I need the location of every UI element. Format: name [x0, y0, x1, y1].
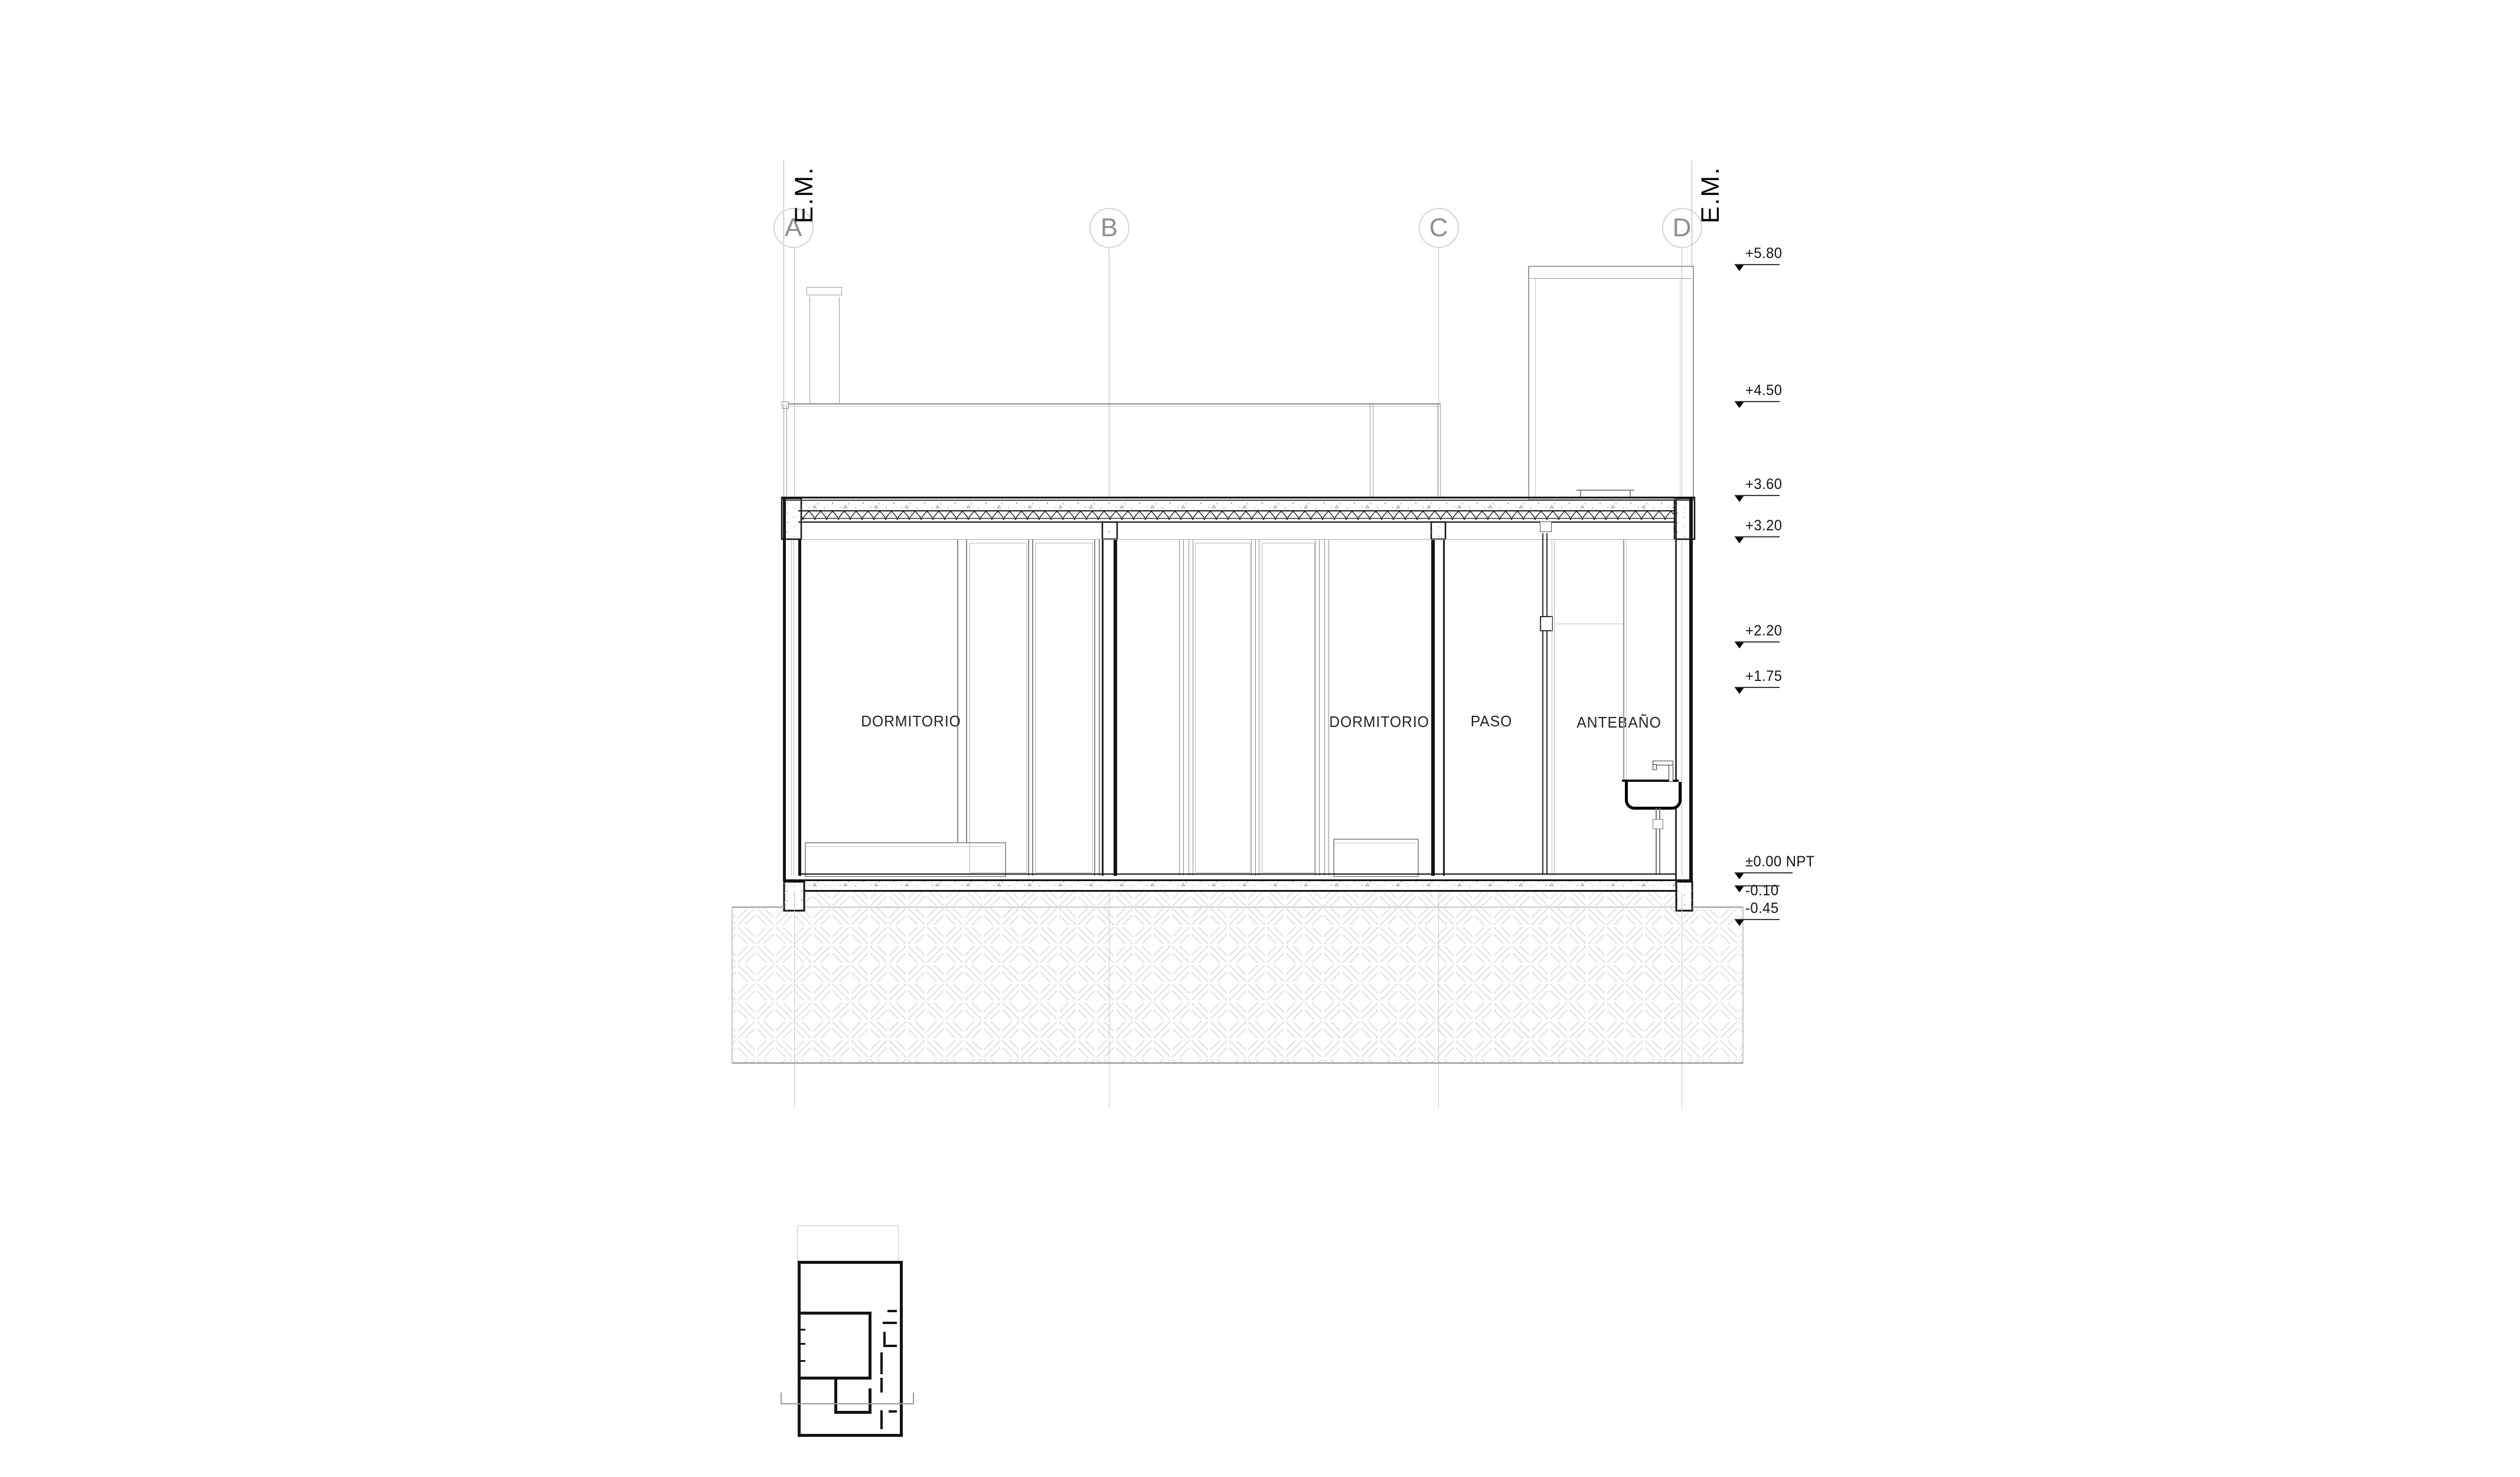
wall-d-outer-leaf	[1689, 498, 1693, 881]
door-leaf-line	[1546, 533, 1548, 875]
parapet-left-cap	[782, 402, 789, 409]
level-triangle-icon	[1735, 687, 1744, 694]
roof-tower-outline	[1528, 266, 1694, 500]
gridline-A-lower	[794, 892, 795, 1108]
roof-bench-top	[1576, 490, 1634, 491]
wall-d-cavity-line	[1682, 540, 1682, 876]
door-panel	[1262, 543, 1315, 873]
level-label: +1.75	[1745, 668, 1782, 685]
keyplan-wall	[883, 1322, 897, 1324]
parapet-mid-post	[1370, 404, 1370, 498]
wall-a-cavity-line	[794, 540, 794, 876]
level-line	[1735, 687, 1780, 688]
foundation-bottom-line	[732, 1062, 1743, 1064]
keyplan-wall	[880, 1410, 883, 1429]
level-line	[1735, 401, 1780, 402]
roof-tower-inner-line-right	[1680, 279, 1680, 498]
keyplan-door-tick	[798, 1343, 805, 1345]
keyplan-wall	[834, 1378, 837, 1413]
window-mullion	[1251, 540, 1252, 876]
level-line	[1735, 919, 1780, 920]
basin-bowl	[1625, 782, 1682, 810]
keyplan-wall	[887, 1310, 897, 1312]
window-mullion	[1179, 540, 1180, 876]
terrain-line-right	[1692, 907, 1743, 908]
level-label: +3.60	[1745, 476, 1782, 493]
grid-axis-label: D	[1673, 213, 1692, 243]
keyplan-wall	[798, 1312, 871, 1315]
window-mullion	[1324, 540, 1325, 876]
door-panel	[1195, 543, 1251, 873]
parapet-top-line	[784, 403, 1441, 405]
window-mullion	[1328, 540, 1329, 876]
parapet-left-post	[786, 404, 787, 498]
terrain-line-left	[732, 907, 784, 908]
room-label-antebano: ANTEBAÑO	[1558, 713, 1681, 732]
keyplan-wall	[834, 1411, 871, 1414]
faucet-tip	[1653, 764, 1657, 770]
wall-c-leaf	[1431, 540, 1435, 876]
wall-a-cavity-line	[791, 540, 792, 876]
room-label-dormitorio-2: DORMITORIO	[1318, 713, 1441, 731]
level-triangle-icon	[1735, 265, 1744, 271]
door-frame-line	[1554, 540, 1555, 876]
drain-pipe-line	[1659, 808, 1660, 874]
window-mullion	[1319, 540, 1320, 876]
room-label-dormitorio-1: DORMITORIO	[850, 712, 973, 731]
level-triangle-icon	[1735, 495, 1744, 502]
keyplan-wall	[880, 1352, 883, 1374]
window-mullion	[1094, 540, 1095, 876]
level-line	[1735, 495, 1780, 496]
bed-outline	[1333, 839, 1419, 877]
level-triangle-icon	[1735, 642, 1744, 648]
window-mullion	[1193, 540, 1193, 876]
wall-c-leaf	[1443, 540, 1445, 876]
party-wall-label-right: E.M.	[1696, 145, 1725, 245]
drain-coupling	[1653, 819, 1663, 829]
window-mullion	[966, 540, 967, 842]
chimney-cap	[807, 287, 842, 295]
window-mullion	[1028, 540, 1029, 876]
wardrobe-panel	[970, 543, 1027, 873]
level-label: ±0.00 NPT	[1745, 853, 1815, 870]
level-label: +3.20	[1745, 517, 1782, 534]
level-label: +2.20	[1745, 622, 1782, 640]
keyplan-section-cut-tick	[913, 1393, 914, 1403]
floor-slab-texture	[785, 881, 1691, 890]
parapet-end-post	[1440, 404, 1441, 498]
window-mullion	[1032, 540, 1033, 876]
shelf-line	[1555, 624, 1623, 624]
level-triangle-icon	[1735, 920, 1744, 926]
wardrobe-panel	[1035, 543, 1093, 873]
drain-pipe-line	[1656, 808, 1657, 874]
level-label: -0.45	[1745, 900, 1779, 917]
bed-top-line	[1334, 843, 1415, 843]
drawing-textures	[0, 0, 2520, 1477]
gridline-B-lower	[1109, 892, 1109, 1108]
keyplan-wall	[883, 1345, 897, 1347]
window-mullion	[1099, 540, 1100, 876]
level-line	[1735, 264, 1780, 265]
keyplan-section-cut-line	[781, 1403, 914, 1404]
keyplan-door-tick	[798, 1360, 805, 1362]
window-mullion	[1259, 540, 1259, 876]
level-triangle-icon	[1735, 402, 1744, 408]
wall-b-leaf	[1114, 540, 1117, 876]
keyplan-wall	[869, 1388, 871, 1414]
roof-joist-deck-band	[798, 511, 1677, 521]
window-mullion	[1255, 540, 1256, 876]
wall-a-inner-leaf	[798, 540, 801, 876]
cabinet-edge-line	[1626, 540, 1627, 781]
grid-bubble-b: B	[1089, 208, 1130, 248]
floor-slab-top-line	[784, 879, 1693, 881]
floor-slab-bottom-line	[805, 890, 1676, 892]
parapet-end-post	[1437, 404, 1438, 498]
roof-top-line-2	[781, 500, 1695, 501]
wall-a-outer-leaf	[783, 498, 786, 881]
window-mullion	[1183, 540, 1184, 876]
level-line	[1735, 872, 1793, 873]
level-triangle-icon	[1735, 537, 1744, 543]
chimney-shaft-line	[809, 297, 810, 403]
grid-bubble-c: C	[1419, 208, 1459, 248]
door-handle	[1540, 616, 1553, 631]
door-track	[1540, 521, 1552, 532]
bed-top-line	[806, 846, 1003, 847]
parapet-second-line	[784, 406, 1441, 407]
party-wall-label-left: E.M.	[790, 145, 818, 245]
parapet-left-post	[784, 404, 784, 498]
grid-axis-label: C	[1429, 213, 1449, 243]
gridline-C-lower	[1438, 892, 1439, 1108]
parapet-mid-post	[1373, 404, 1373, 498]
roof-band-divider	[798, 510, 1677, 511]
window-mullion	[1315, 540, 1316, 876]
level-triangle-icon	[1735, 886, 1744, 892]
level-line	[1735, 536, 1780, 537]
level-label: -0.10	[1745, 882, 1779, 899]
keyplan-wall	[869, 1312, 871, 1380]
opening-head-line	[801, 539, 1676, 540]
roof-tower-cap-line	[1528, 278, 1692, 279]
wall-b-leaf	[1102, 540, 1104, 876]
cabinet-edge-line	[1623, 540, 1624, 781]
gridline-D-lower	[1682, 892, 1682, 1108]
door-leaf-line	[1542, 533, 1543, 875]
room-label-paso: PASO	[1430, 712, 1553, 731]
floor-finish-line	[801, 873, 1676, 875]
chimney-shaft-line	[839, 297, 840, 403]
window-mullion	[1189, 540, 1189, 876]
grid-axis-label: B	[1101, 213, 1118, 243]
roof-concrete-band	[798, 500, 1677, 511]
roof-tower-inner-line-left	[1535, 279, 1536, 498]
keyplan-terrace-outline	[797, 1225, 899, 1262]
foundation-under-building-hatch	[805, 892, 1676, 1062]
wall-d-inner-leaf	[1675, 498, 1677, 881]
bed-outline	[805, 842, 1006, 877]
keyplan-wall	[880, 1378, 883, 1393]
section-drawing-sheet: A B C D E.M. E.M.	[0, 0, 2520, 1477]
keyplan-section-cut-tick	[781, 1393, 782, 1403]
keyplan-door-tick	[798, 1329, 805, 1331]
level-triangle-icon	[1735, 873, 1744, 879]
door-frame-line	[1552, 540, 1552, 876]
window-mullion	[957, 540, 958, 842]
level-line	[1735, 641, 1780, 643]
level-label: +5.80	[1745, 245, 1782, 262]
roof-top-line	[781, 497, 1695, 498]
keyplan-wall	[889, 1410, 897, 1413]
level-label: +4.50	[1745, 382, 1782, 399]
